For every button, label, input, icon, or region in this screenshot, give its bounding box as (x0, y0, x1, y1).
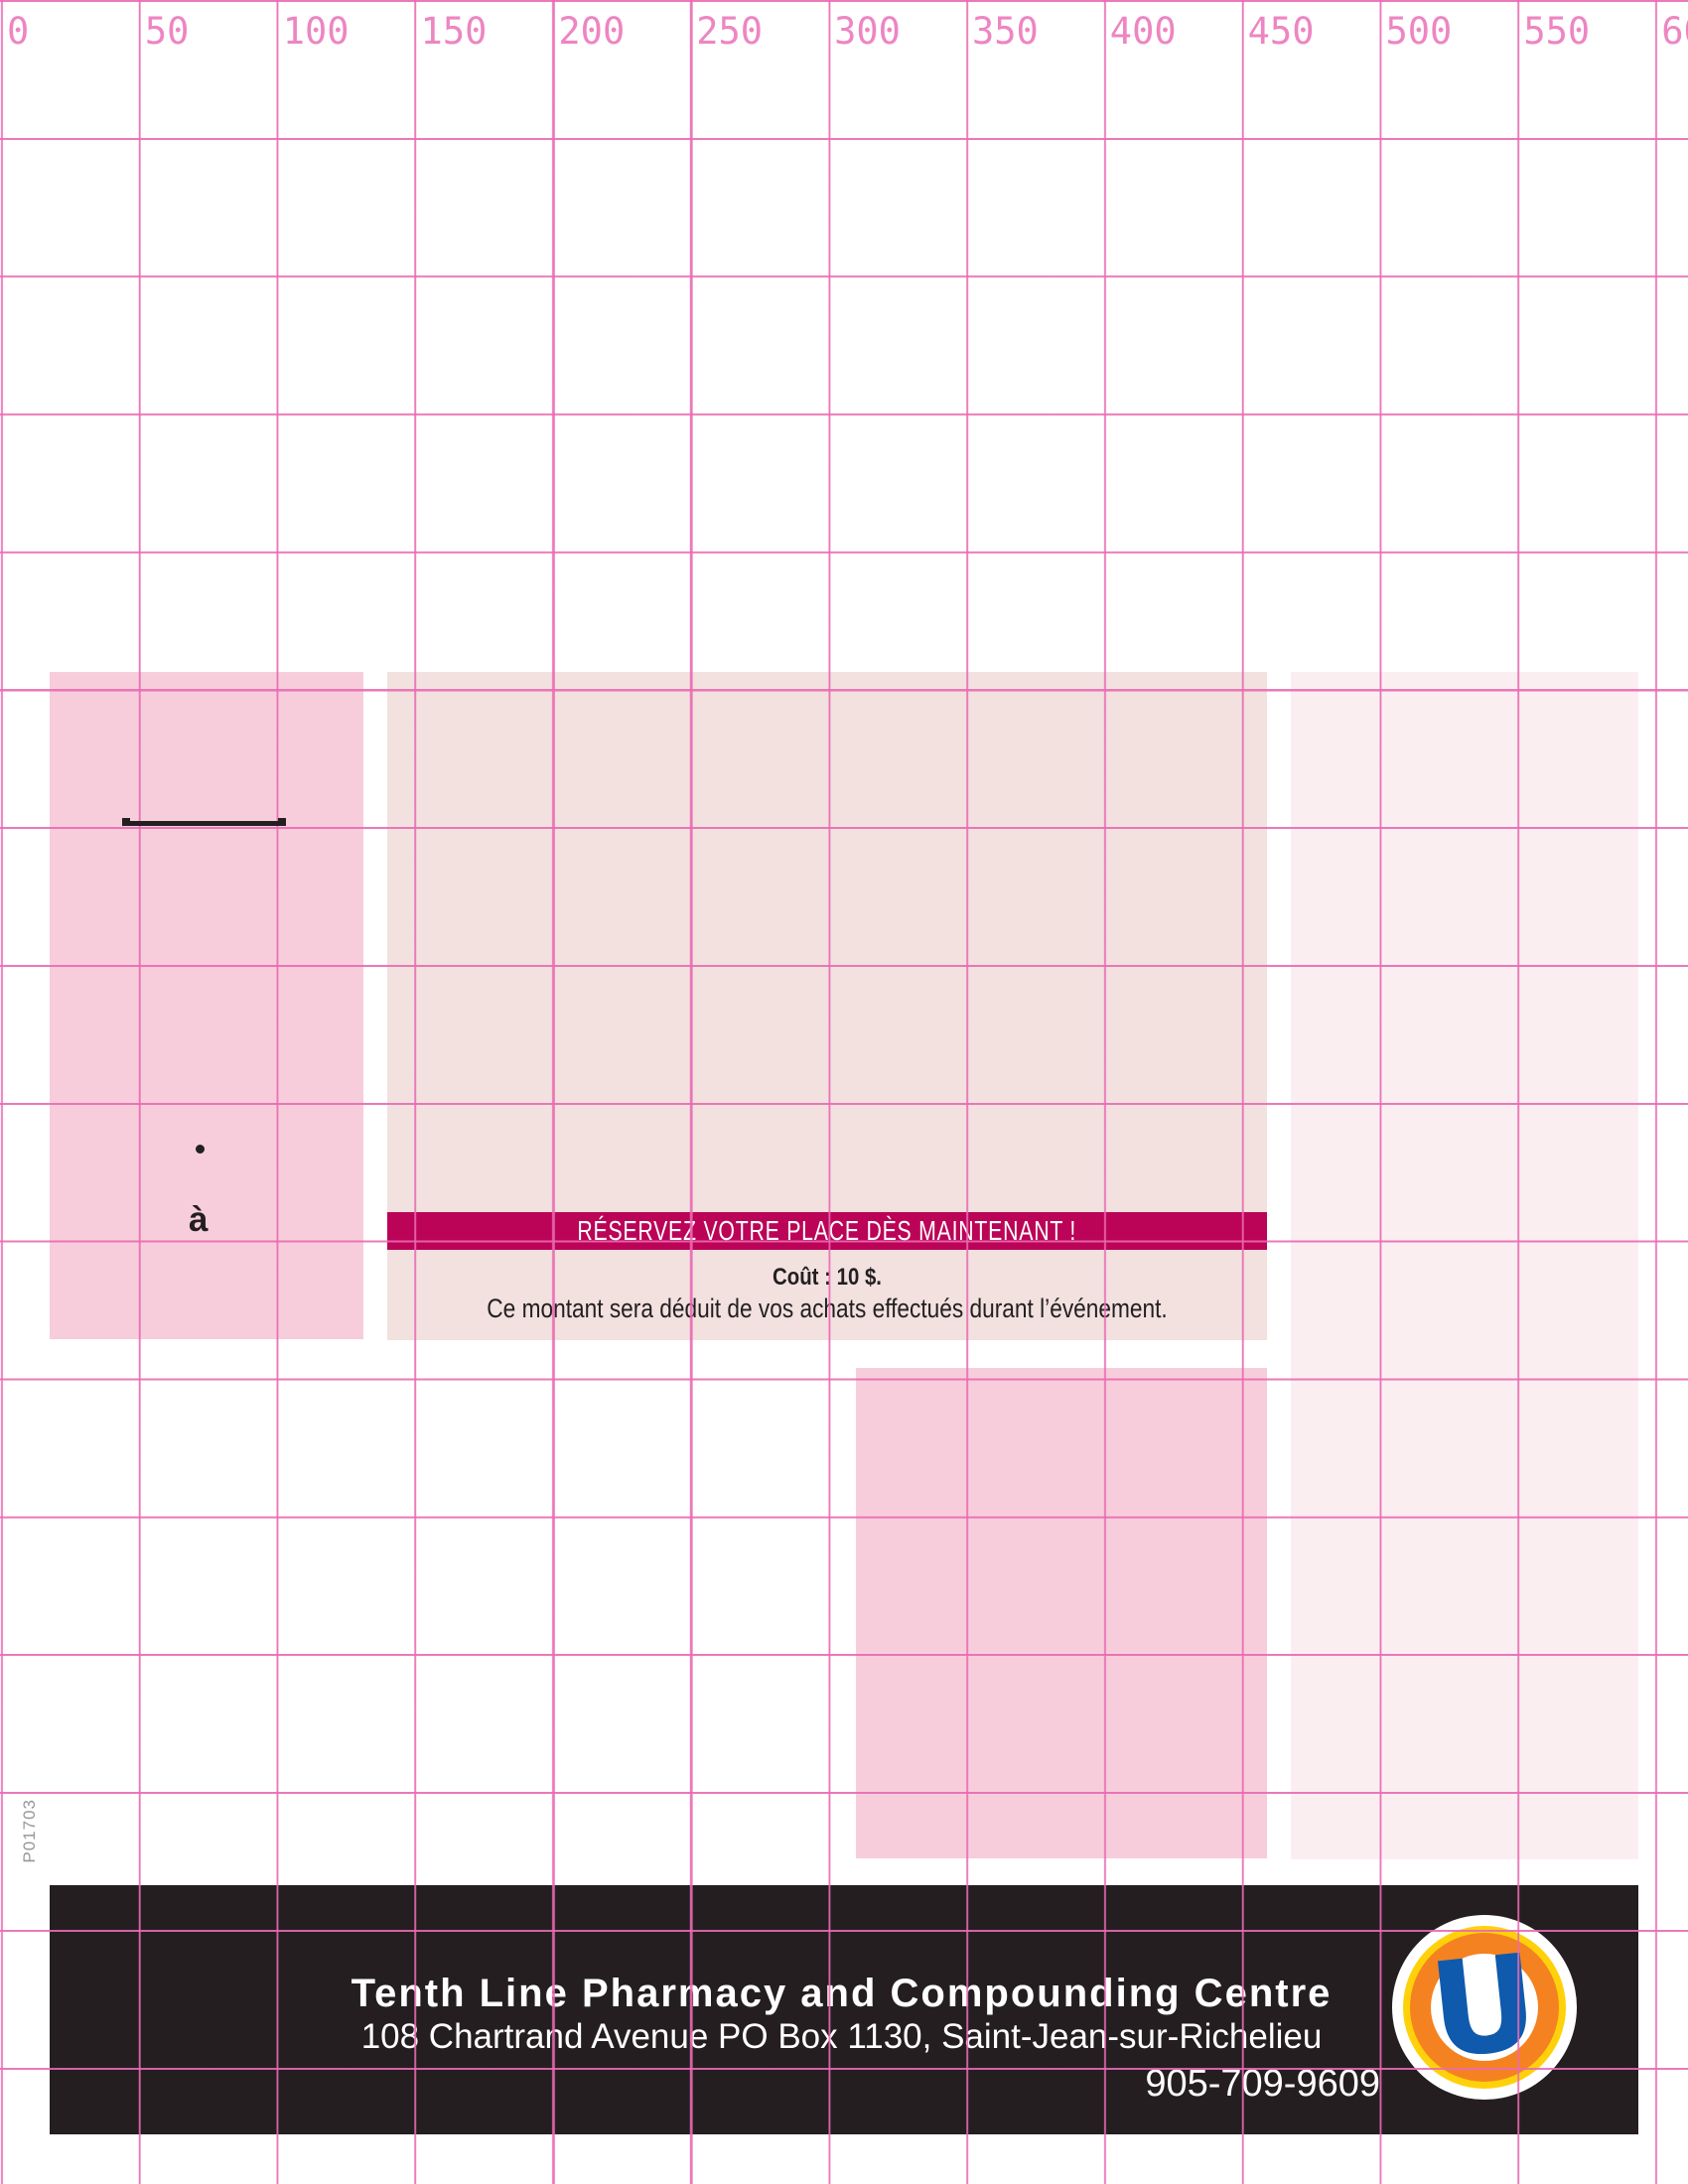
pharmacy-phone: 905-709-9609 (303, 2062, 1380, 2106)
ruler-tick-label: 600 (1661, 10, 1688, 53)
ruler-tick-label: 500 (1386, 10, 1453, 53)
accent-word: à (189, 1200, 208, 1240)
ruler-tick-label: 300 (834, 10, 901, 53)
ruler-tick-label: 550 (1523, 10, 1590, 53)
ruler-tick-label: 200 (558, 10, 625, 53)
lower-pink-panel (856, 1368, 1267, 1858)
logo-yellow-ring: U (1403, 1926, 1566, 2089)
reserve-banner-text: RÉSERVEZ VOTRE PLACE DÈS MAINTENANT ! (578, 1215, 1077, 1247)
ruler-tick-label: 150 (421, 10, 488, 53)
logo-orange-ring: U (1410, 1933, 1559, 2082)
right-pale-panel (1291, 672, 1638, 1859)
cost-line: Coût : 10 $. (453, 1263, 1200, 1293)
ruler-tick-label: 50 (145, 10, 190, 53)
pharmacy-name: Tenth Line Pharmacy and Compounding Cent… (303, 1970, 1380, 2017)
footer-bar: Tenth Line Pharmacy and Compounding Cent… (50, 1885, 1638, 2134)
ruler-tick-label: 250 (696, 10, 763, 53)
logo-u-letter: U (1425, 1937, 1544, 2078)
ruler-tick-label: 450 (1248, 10, 1315, 53)
bullet-icon (196, 1145, 205, 1154)
flyer-proof-page: RÉSERVEZ VOTRE PLACE DÈS MAINTENANT ! Co… (0, 0, 1688, 2184)
ruler-scale: 050100150200250300350400450500550600 (0, 0, 1688, 60)
ruler-tick-label: 350 (972, 10, 1039, 53)
pharmacy-address: 108 Chartrand Avenue PO Box 1130, Saint-… (303, 2016, 1380, 2058)
ruler-tick-label: 100 (283, 10, 350, 53)
cost-note: Ce montant sera déduit de vos achats eff… (458, 1293, 1196, 1324)
blank-fill-line (122, 821, 286, 826)
pricing-block: Coût : 10 $. Ce montant sera déduit de v… (387, 1263, 1267, 1324)
uniprix-logo-icon: U (1392, 1915, 1577, 2100)
logo-white-disc: U (1431, 1954, 1538, 2061)
proof-code: P01703 (20, 1799, 40, 1863)
ruler-tick-label: 400 (1110, 10, 1177, 53)
reserve-banner: RÉSERVEZ VOTRE PLACE DÈS MAINTENANT ! (387, 1212, 1267, 1250)
ruler-tick-label: 0 (7, 10, 29, 53)
